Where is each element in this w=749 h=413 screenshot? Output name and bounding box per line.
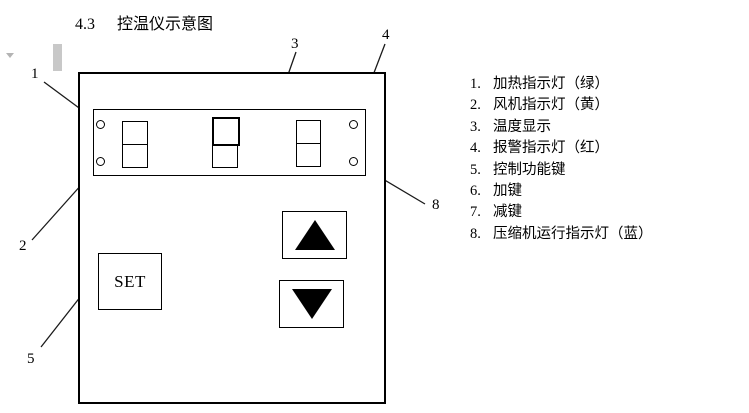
legend-item-text: 控制功能键: [493, 160, 566, 181]
section-number: 4.3: [75, 16, 95, 33]
legend-item-8: 8. 压缩机运行指示灯（蓝）: [470, 224, 653, 245]
digit3-bottom-segment: [296, 143, 321, 167]
legend-item-number: 4.: [470, 138, 493, 159]
digit2-bottom-segment: [212, 145, 238, 168]
legend-item-text: 加热指示灯（绿）: [493, 74, 609, 95]
legend-item-5: 5. 控制功能键: [470, 160, 653, 181]
up-arrow-icon: [295, 220, 335, 250]
legend-item-text: 减键: [493, 202, 522, 223]
legend-item-text: 温度显示: [493, 117, 551, 138]
digit3-top-segment: [296, 120, 321, 144]
legend-item-number: 8.: [470, 224, 493, 245]
set-button-label: SET: [114, 272, 146, 292]
decrease-button: [279, 280, 344, 328]
legend-item-text: 压缩机运行指示灯（蓝）: [493, 224, 653, 245]
fan-indicator-lamp: [96, 157, 105, 166]
increase-button: [282, 211, 347, 259]
digit2-top-segment-active: [212, 117, 240, 146]
legend-item-number: 2.: [470, 95, 493, 116]
page-title: 4.3控温仪示意图: [75, 10, 213, 34]
legend-item-number: 1.: [470, 74, 493, 95]
alarm-indicator-lamp: [349, 120, 358, 129]
down-arrow-icon: [292, 289, 332, 319]
legend-item-text: 报警指示灯（红）: [493, 138, 609, 159]
callout-label-3: 3: [291, 37, 299, 52]
legend-list: 1. 加热指示灯（绿） 2. 风机指示灯（黄） 3. 温度显示 4. 报警指示灯…: [470, 74, 653, 245]
legend-item-text: 风机指示灯（黄）: [493, 95, 609, 116]
collapse-arrow-icon: [6, 53, 14, 58]
legend-item-3: 3. 温度显示: [470, 117, 653, 138]
document-page: 4.3控温仪示意图 1 2 3 4 5 6 7 8 SET: [0, 0, 749, 413]
callout-label-8: 8: [432, 198, 440, 213]
callout-label-2: 2: [19, 239, 27, 254]
legend-item-7: 7. 减键: [470, 202, 653, 223]
legend-item-number: 5.: [470, 160, 493, 181]
callout-label-4: 4: [382, 28, 390, 43]
legend-item-number: 7.: [470, 202, 493, 223]
set-button: SET: [98, 253, 162, 310]
legend-item-2: 2. 风机指示灯（黄）: [470, 95, 653, 116]
digit1-top-segment: [122, 121, 148, 145]
legend-item-number: 3.: [470, 117, 493, 138]
callout-label-1: 1: [31, 67, 39, 82]
legend-item-4: 4. 报警指示灯（红）: [470, 138, 653, 159]
legend-item-6: 6. 加键: [470, 181, 653, 202]
legend-item-text: 加键: [493, 181, 522, 202]
compressor-indicator-lamp: [349, 157, 358, 166]
digit1-bottom-segment: [122, 144, 148, 168]
legend-item-1: 1. 加热指示灯（绿）: [470, 74, 653, 95]
legend-item-number: 6.: [470, 181, 493, 202]
scrollbar-thumb: [53, 44, 62, 71]
heating-indicator-lamp: [96, 120, 105, 129]
section-heading: 控温仪示意图: [117, 16, 213, 33]
callout-label-5: 5: [27, 352, 35, 367]
